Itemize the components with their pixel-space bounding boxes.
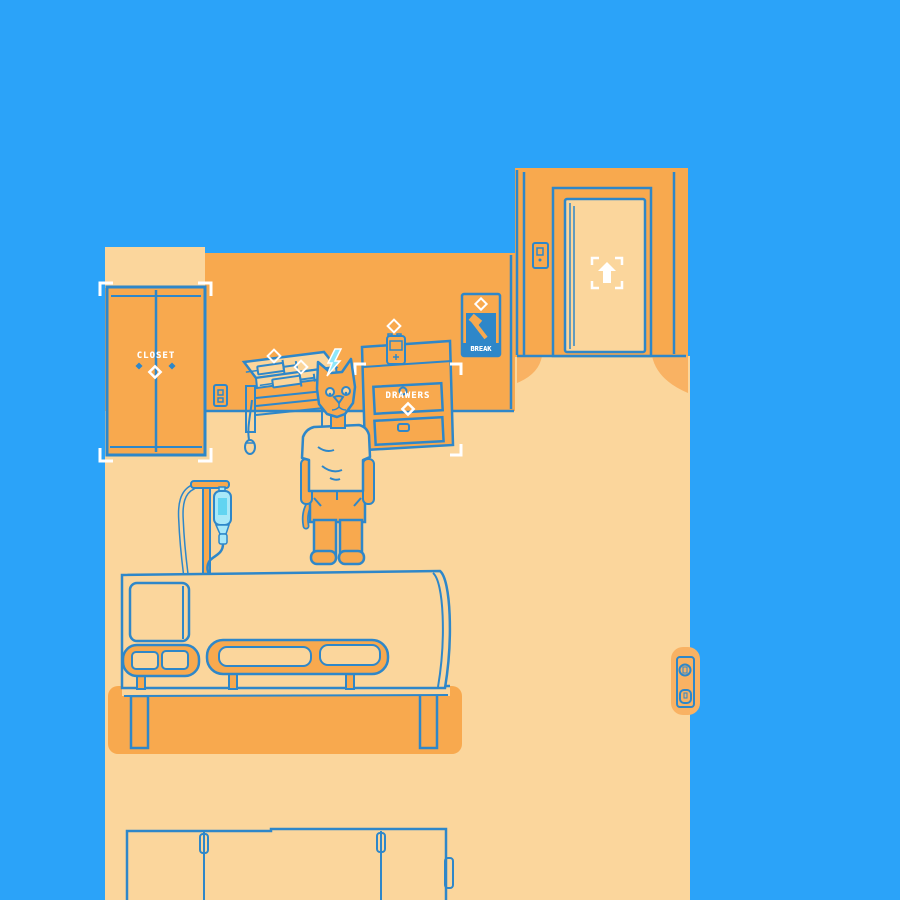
- drawers-label: DRAWERS: [362, 391, 454, 401]
- iv-fluid: [218, 498, 227, 515]
- closet-top-surface: [105, 247, 205, 288]
- shirt: [302, 425, 370, 491]
- rail-window: [219, 647, 311, 666]
- bed-leg: [131, 696, 148, 748]
- shoe: [339, 551, 364, 564]
- rail-window: [320, 645, 380, 665]
- rail-window: [162, 651, 188, 669]
- rail-post: [229, 673, 237, 689]
- game-viewport: CLOSET DRAWERS BREAK: [0, 0, 900, 900]
- closet[interactable]: [100, 283, 211, 461]
- rail-window: [132, 652, 158, 669]
- floor-outlet: [671, 647, 700, 715]
- closet-label: CLOSET: [111, 351, 201, 361]
- hospital-bed: [108, 571, 462, 754]
- shoe: [311, 551, 336, 564]
- exit-door[interactable]: [553, 188, 651, 356]
- room-scene: [0, 0, 900, 900]
- headboard: [130, 583, 189, 641]
- break-label: BREAK: [451, 345, 511, 353]
- pupil: [329, 393, 332, 396]
- drip-chamber: [219, 534, 227, 544]
- arm: [363, 459, 374, 504]
- pupil: [345, 392, 348, 395]
- bed-leg: [420, 694, 437, 748]
